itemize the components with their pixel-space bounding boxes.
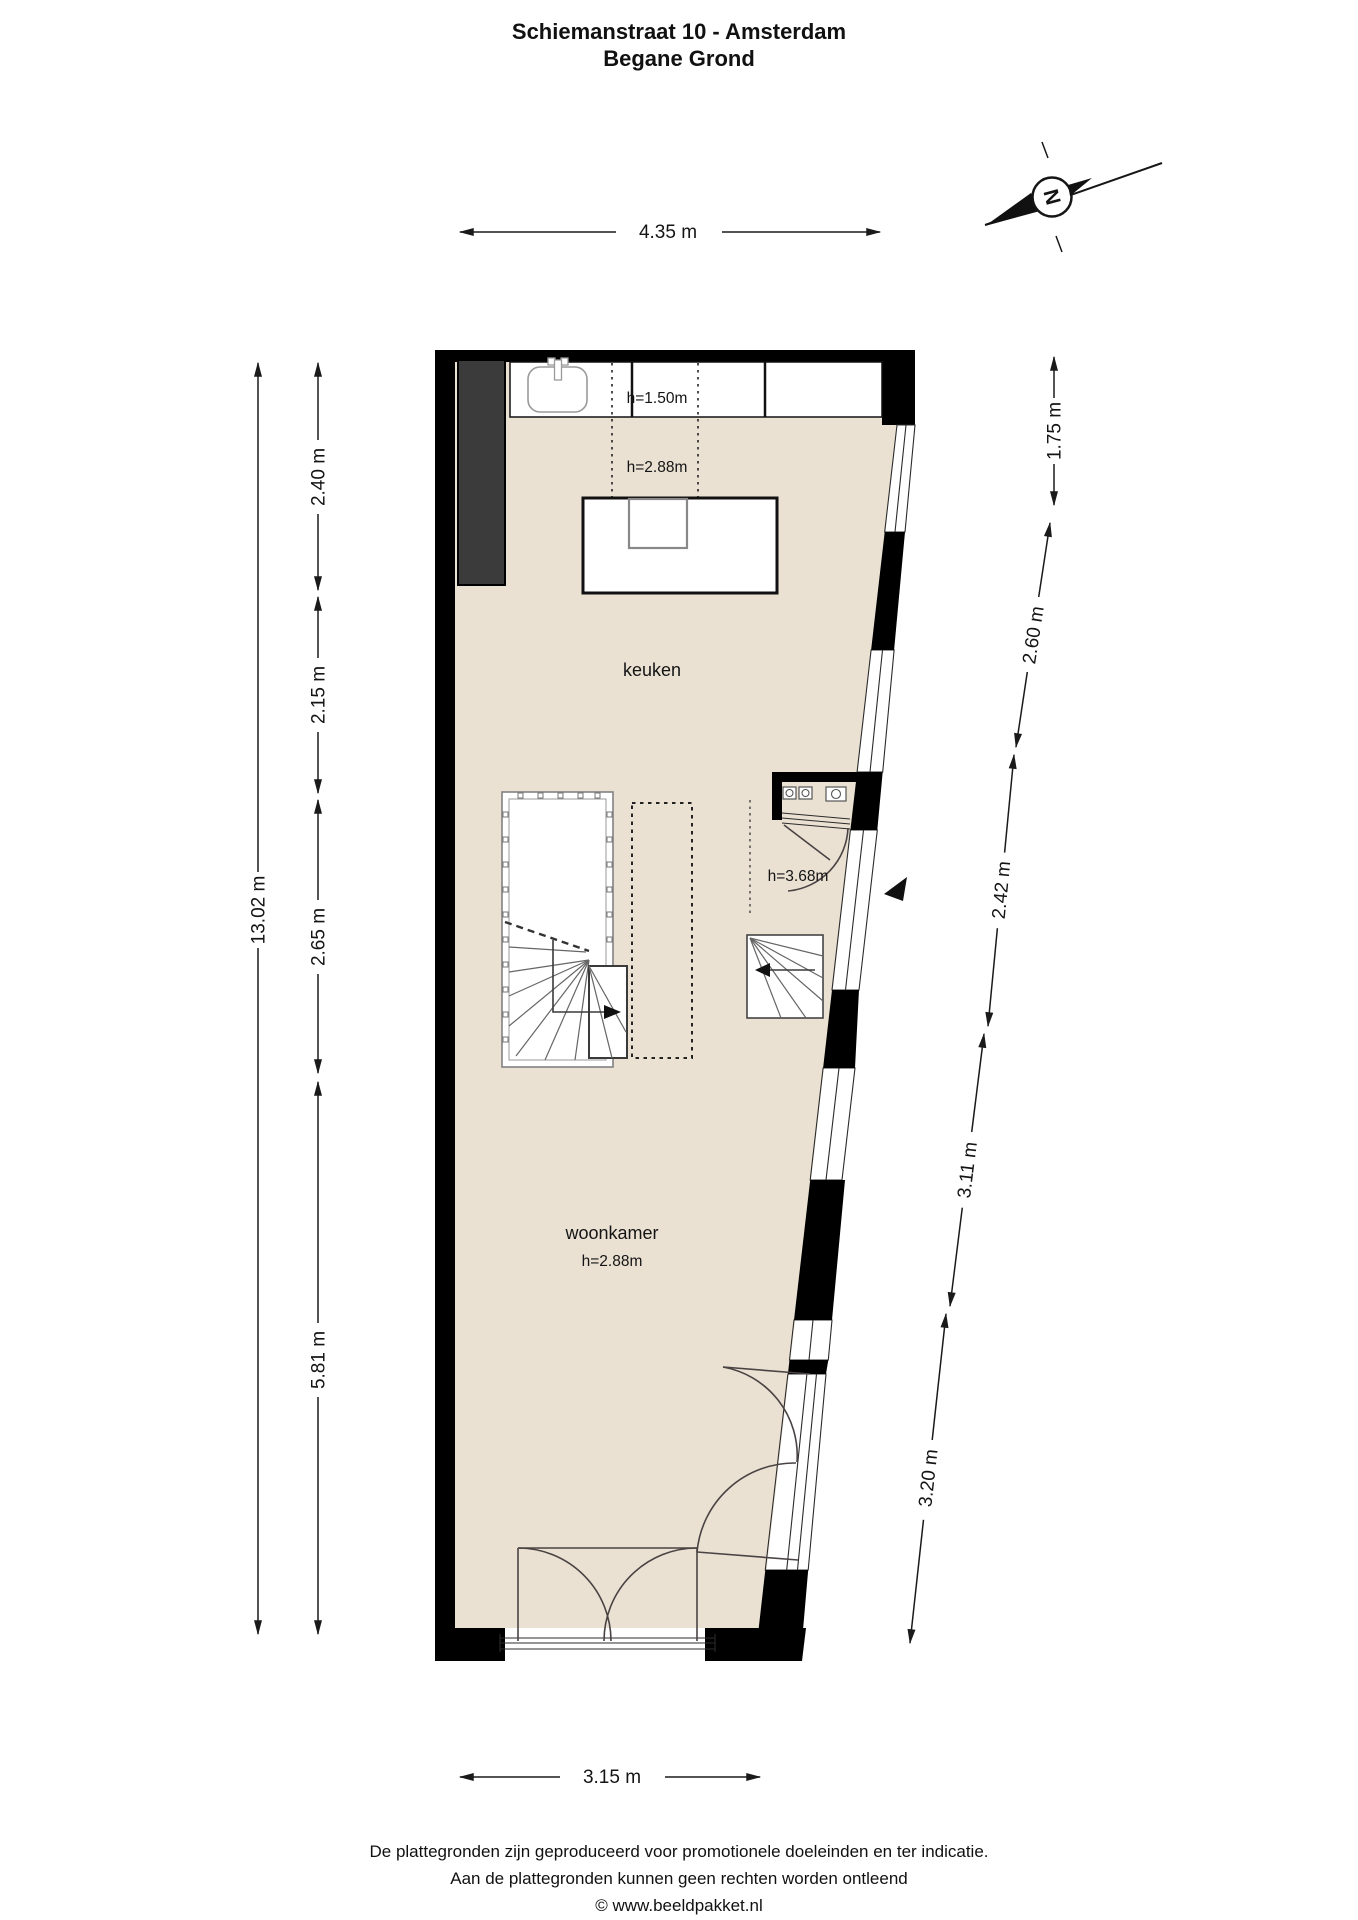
footer-line-3: © www.beeldpakket.nl (0, 1892, 1358, 1919)
dimension-right-segments: 1.75 m 2.60 m 2.42 m 3.11 m 3.20 m (910, 357, 1066, 1643)
compass-icon: N (985, 142, 1162, 252)
floorplan-page: Schiemanstraat 10 - Amsterdam Begane Gro… (0, 0, 1358, 1920)
entry-height-label: h=3.68m (768, 868, 829, 885)
livingroom-label: woonkamer (564, 1223, 658, 1243)
meter-cupboard-wall-left (772, 772, 782, 820)
meter-cupboard-wall-top (772, 772, 857, 782)
wall-bottom-right (700, 1628, 806, 1661)
dim-right-4-label: 3.11 m (954, 1141, 982, 1200)
dim-right-3-label: 2.42 m (989, 860, 1015, 920)
floorplan-svg: N 4.35 m 3.15 m 13.02 m 2.40 m 2.15 m (0, 0, 1358, 1920)
counter-height-label: h=1.50m (627, 390, 688, 407)
dim-left-2-label: 2.15 m (309, 666, 330, 724)
kitchen-island (583, 498, 777, 593)
dimension-top: 4.35 m (460, 222, 880, 243)
entry-steps (747, 935, 823, 1018)
kitchen-label: keuken (623, 660, 681, 680)
dim-left-4-label: 5.81 m (309, 1331, 330, 1389)
footer-line-2: Aan de plattegronden kunnen geen rechten… (0, 1865, 1358, 1892)
dim-bottom-label: 3.15 m (583, 1767, 641, 1788)
kitchen-counter (510, 358, 882, 417)
dim-right-2-label: 2.60 m (1019, 605, 1049, 666)
wall-left (435, 350, 455, 1661)
entrance-arrow-icon (884, 877, 907, 901)
dim-right-5-label: 3.20 m (915, 1448, 942, 1508)
tall-cabinet (458, 360, 505, 585)
dimension-left-segments: 2.40 m 2.15 m 2.65 m 5.81 m (309, 363, 330, 1634)
wall-bottom-left (435, 1628, 510, 1661)
dim-top-label: 4.35 m (639, 222, 697, 243)
floorplan: h=1.50m h=2.88m keuken h=3.68m woonkamer… (435, 350, 915, 1661)
staircase (502, 792, 627, 1067)
dim-left-total-label: 13.02 m (249, 876, 270, 945)
footer-disclaimer: De plattegronden zijn geproduceerd voor … (0, 1838, 1358, 1919)
livingroom-height-label: h=2.88m (582, 1253, 643, 1270)
dim-left-3-label: 2.65 m (309, 908, 330, 966)
kitchen-height-label: h=2.88m (627, 459, 688, 476)
dim-right-1-label: 1.75 m (1045, 402, 1066, 460)
compass-east-arrow (1068, 178, 1092, 196)
dim-left-1-label: 2.40 m (309, 448, 330, 506)
dimension-left-total: 13.02 m (249, 363, 270, 1634)
wall-top-right-corner (882, 350, 915, 425)
dimension-bottom: 3.15 m (460, 1767, 760, 1788)
island-hob (629, 499, 687, 548)
footer-line-1: De plattegronden zijn geproduceerd voor … (0, 1838, 1358, 1865)
